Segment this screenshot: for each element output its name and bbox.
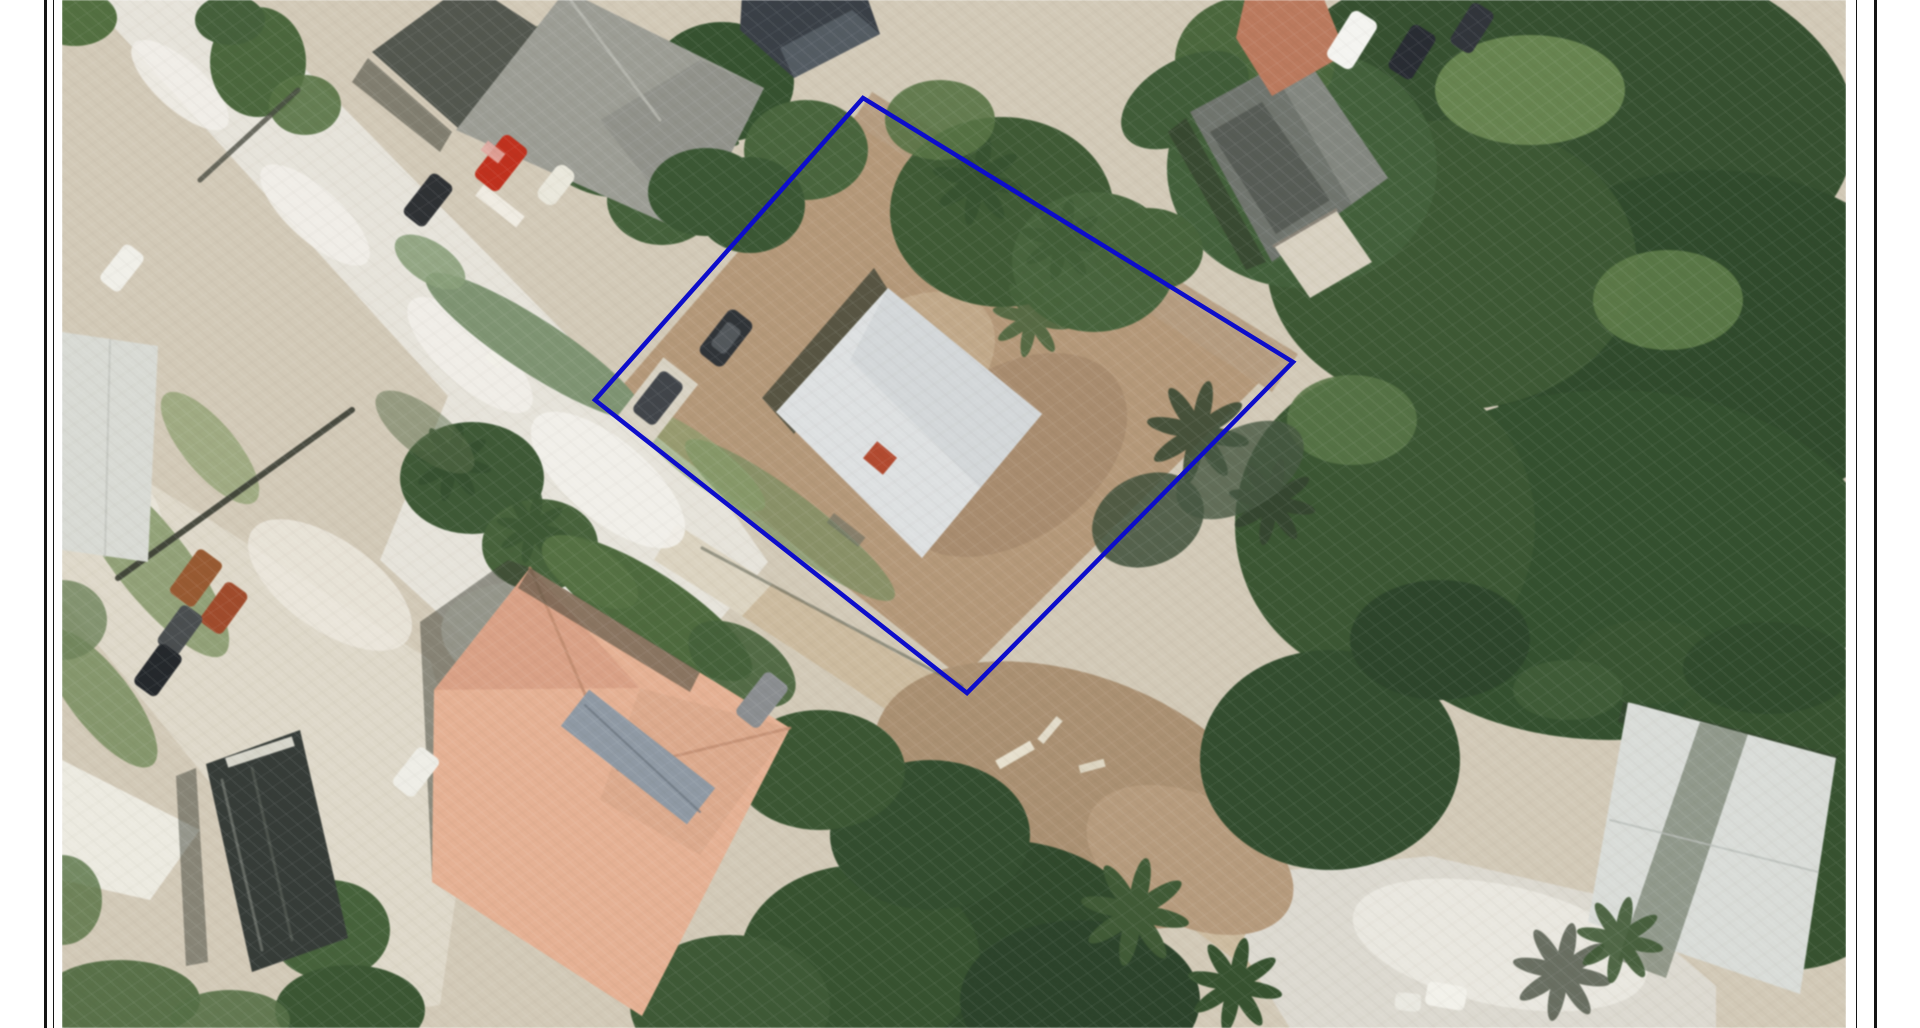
parcel-boundary: [595, 98, 1293, 693]
frame-right-inner: [1856, 0, 1857, 1028]
aerial-photo: [62, 0, 1846, 1028]
frame-right-outer: [1874, 0, 1877, 1028]
parcel-overlay-svg: [62, 0, 1846, 1028]
frame-left-inner: [53, 0, 54, 1028]
page: [0, 0, 1920, 1028]
frame-left-outer: [44, 0, 47, 1028]
